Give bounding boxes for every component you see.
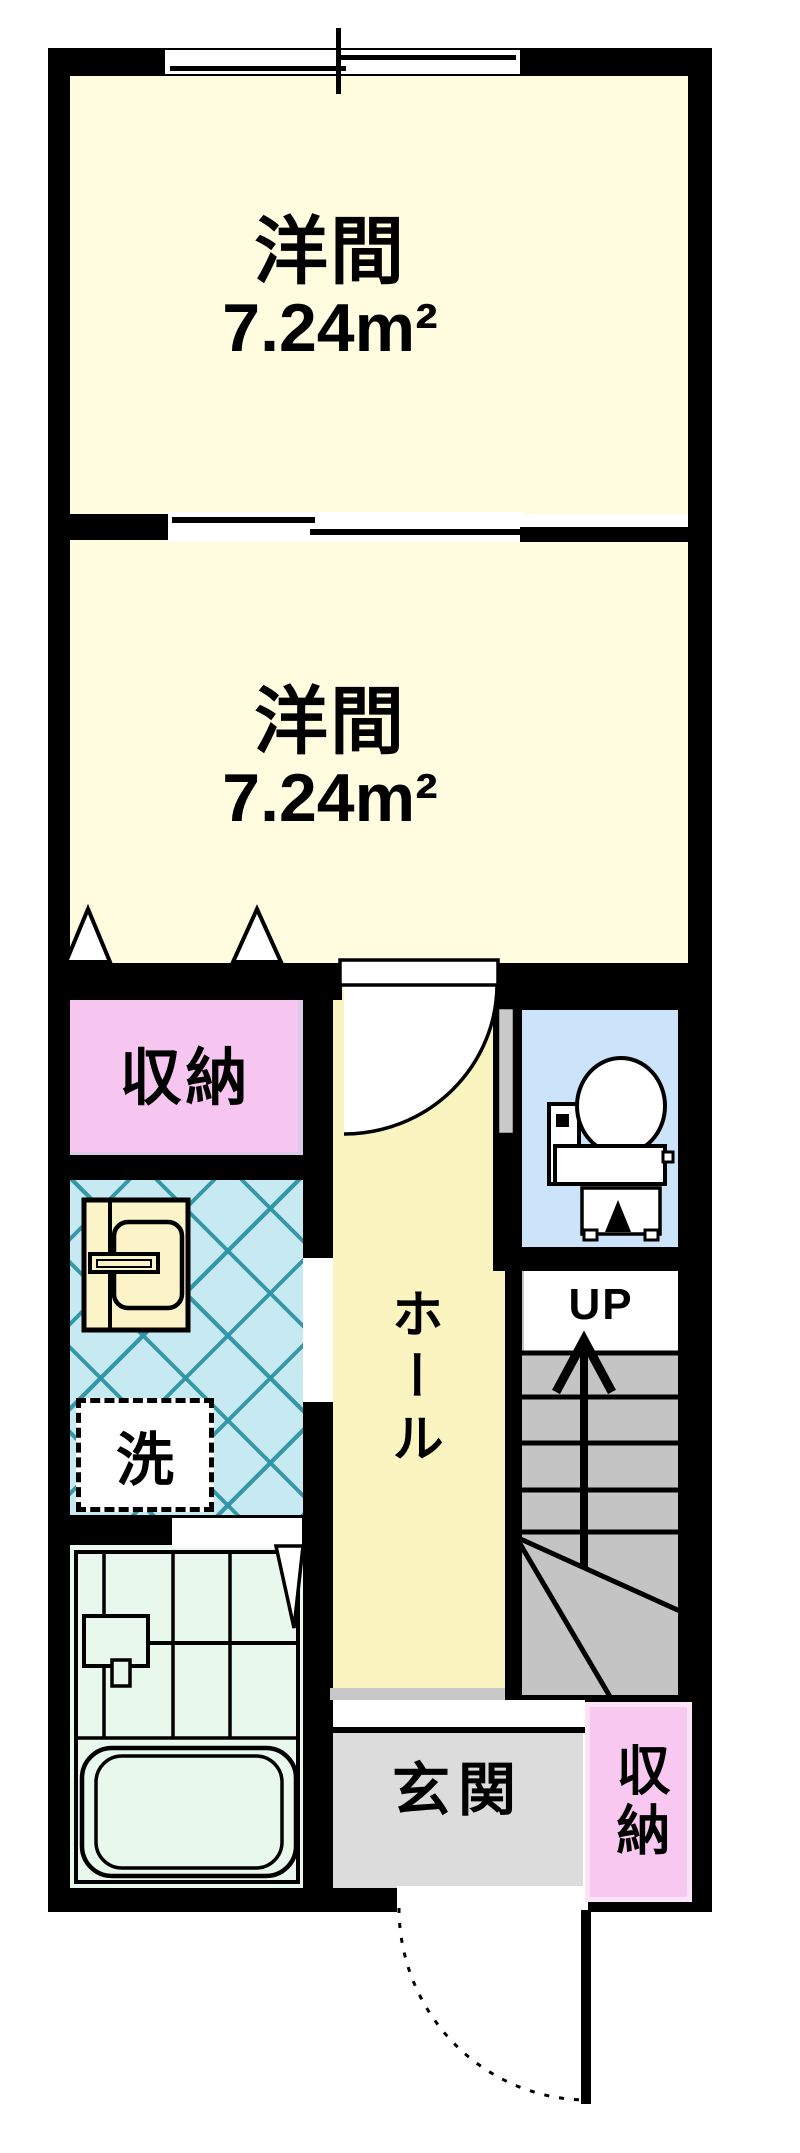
bathroom — [68, 1545, 305, 1888]
wall-bottom-left — [48, 1888, 397, 1912]
washroom-door-gap — [303, 1258, 333, 1402]
divider-pane-1 — [172, 517, 315, 523]
bath-door-gap — [172, 1518, 302, 1548]
window-pane-left — [170, 66, 346, 71]
hall-label: ホール — [384, 1215, 440, 1545]
room1-label: 洋間 7.24m² — [70, 212, 590, 365]
toilet-room — [522, 1010, 680, 1247]
stairs-up-label: UP — [522, 1280, 680, 1330]
room2-label: 洋間 7.24m² — [70, 682, 590, 835]
entrance-door-swing-icon — [399, 1908, 591, 2104]
wall-right-inner — [678, 1000, 690, 1708]
entrance-label: 玄関 — [333, 1760, 583, 1823]
divider-pane-2 — [310, 529, 522, 535]
laundry-label: 洗 — [116, 1413, 174, 1497]
divider-thin-wall — [520, 527, 688, 542]
window-pane-right — [338, 55, 516, 60]
closet-upper-label: 収納 — [68, 1046, 303, 1113]
closet-lower: 収納 — [585, 1702, 692, 1902]
floor-plan: 洋間 7.24m² 洋間 7.24m² 収納 ホール UP 洗 玄関 収納 — [0, 0, 800, 2153]
washer-pan-icon: 洗 — [76, 1398, 214, 1512]
wall-toilet-left — [493, 1000, 522, 1258]
wall-stairs-left — [505, 1258, 522, 1698]
entrance-top-line — [330, 1727, 588, 1733]
entrance-threshold — [333, 1700, 585, 1728]
room1-name: 洋間 — [70, 212, 590, 292]
room1-area: 7.24m² — [70, 292, 590, 365]
wall-under-closet — [48, 1155, 303, 1180]
wall-mid-vertical — [303, 963, 333, 1888]
wall-below-room2-l — [48, 963, 342, 1000]
room2-area: 7.24m² — [70, 762, 590, 835]
entrance-door-gap — [397, 1886, 588, 1914]
wall-divider-rooms — [48, 514, 168, 540]
room2-name: 洋間 — [70, 682, 590, 762]
closet-lower-label: 収納 — [599, 1742, 678, 1862]
hall-bottom-edge — [330, 1688, 505, 1700]
wall-below-room2-r — [493, 963, 712, 1010]
